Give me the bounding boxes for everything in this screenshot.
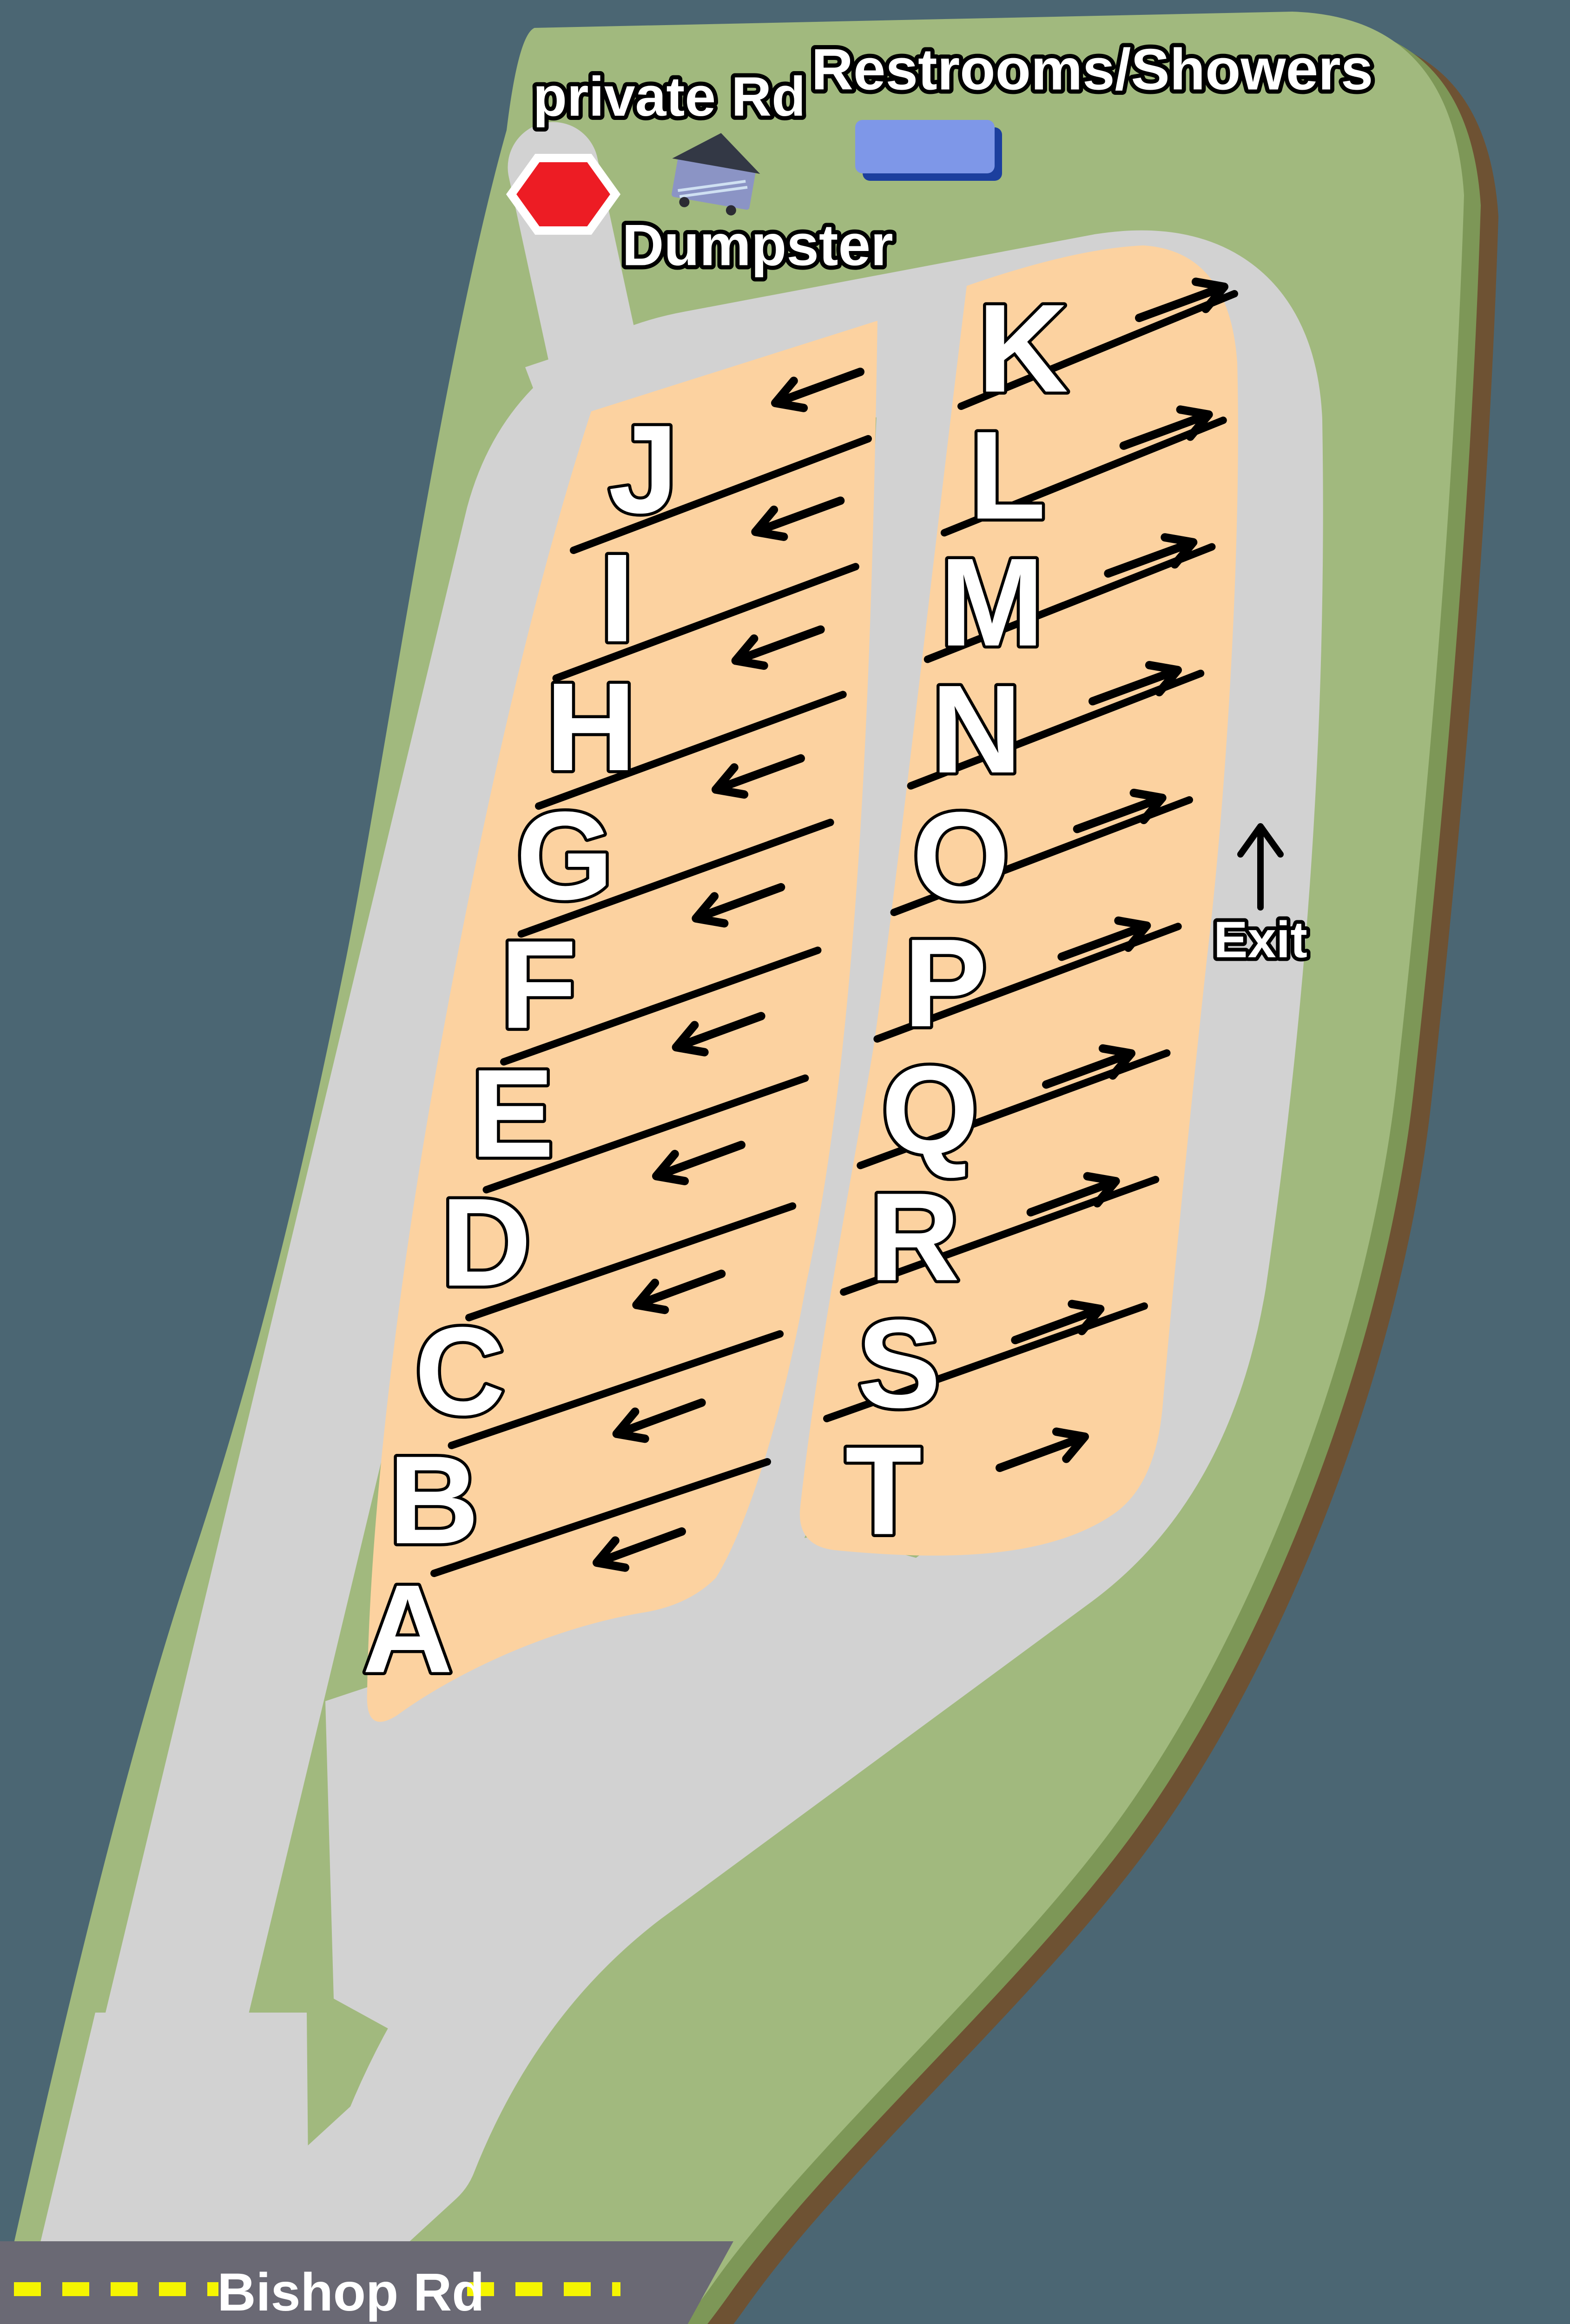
row-label-F: F xyxy=(500,915,577,1055)
row-label-N: N xyxy=(931,660,1022,799)
row-label-C: C xyxy=(415,1301,505,1441)
restrooms-label: Restrooms/Showers xyxy=(811,38,1373,102)
stop-sign-icon xyxy=(511,158,615,231)
row-label-A: A xyxy=(363,1559,453,1699)
row-label-S: S xyxy=(857,1294,941,1434)
row-label-E: E xyxy=(470,1044,554,1184)
row-label-I: I xyxy=(600,528,634,668)
row-label-L: L xyxy=(969,406,1046,546)
row-label-B: B xyxy=(389,1430,479,1570)
row-label-T: T xyxy=(845,1421,922,1561)
row-label-R: R xyxy=(869,1167,960,1307)
exit-label: Exit xyxy=(1214,911,1307,969)
bishop-road: Bishop Rd xyxy=(0,2241,733,2324)
row-label-O: O xyxy=(912,786,1010,926)
row-label-G: G xyxy=(516,786,613,926)
private-road-label: private Rd xyxy=(533,66,806,128)
row-label-Q: Q xyxy=(881,1040,979,1180)
row-label-K: K xyxy=(978,279,1069,419)
row-label-J: J xyxy=(608,400,678,540)
row-label-H: H xyxy=(546,657,636,797)
row-label-P: P xyxy=(904,913,987,1053)
restrooms-building xyxy=(855,120,1002,181)
row-label-D: D xyxy=(441,1173,532,1313)
row-label-M: M xyxy=(940,533,1044,673)
campground-map: Bishop Rd JIHGFEDCBA KLMNOPQRST Exit pri… xyxy=(0,0,1570,2324)
dumpster-label: Dumpster xyxy=(622,213,893,278)
bishop-road-label: Bishop Rd xyxy=(218,2263,485,2322)
